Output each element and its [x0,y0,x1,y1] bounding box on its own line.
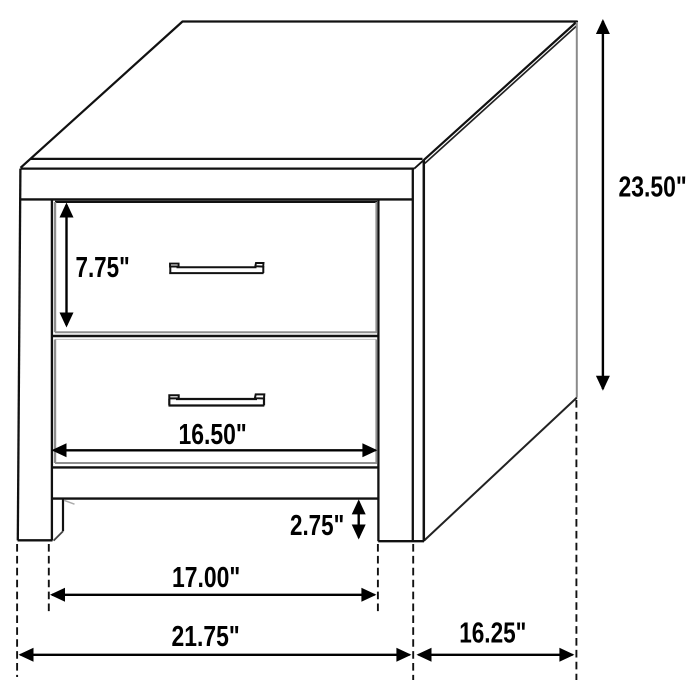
svg-text:17.00": 17.00" [172,562,240,594]
svg-text:16.25": 16.25" [459,618,526,650]
svg-text:21.75": 21.75" [172,621,240,653]
svg-text:2.75": 2.75" [290,510,344,542]
svg-text:16.50": 16.50" [179,419,247,451]
svg-text:23.50": 23.50" [619,172,687,204]
svg-text:7.75": 7.75" [76,252,130,284]
